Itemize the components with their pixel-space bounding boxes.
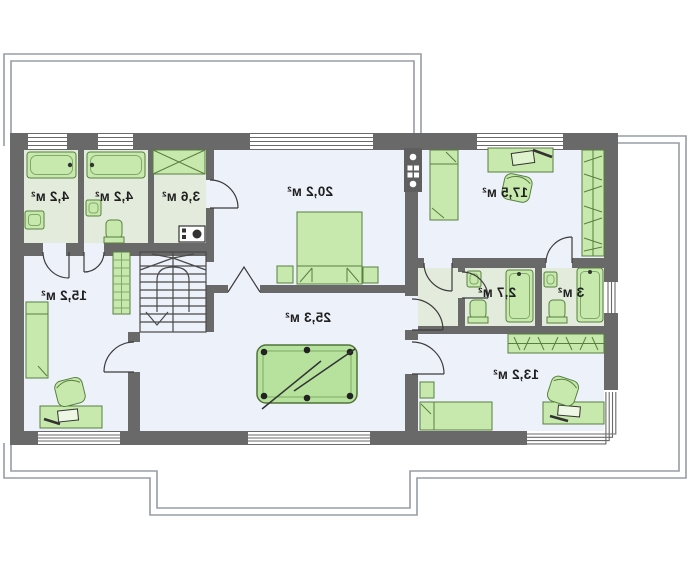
toilet-icon — [104, 220, 124, 243]
nightstand-icon — [277, 266, 293, 283]
window — [605, 282, 617, 313]
desk-icon — [488, 148, 553, 172]
bathtub-icon — [27, 152, 76, 178]
washbasin-icon — [25, 211, 44, 229]
window — [38, 432, 120, 444]
room-area-label: 4,2 м² — [95, 189, 134, 204]
room-area-label: 17,5 м² — [482, 185, 528, 200]
room-area-label: 4,2 м² — [31, 189, 70, 204]
billiard-table-icon — [257, 345, 357, 409]
toilet-icon — [547, 300, 567, 323]
room-area-label: 3 м² — [557, 285, 584, 300]
double-bed-icon — [297, 212, 362, 284]
single-bed-icon — [420, 402, 492, 430]
window — [248, 432, 370, 444]
wardrobe-icon — [582, 150, 604, 256]
room-area-label: 25,3 м² — [285, 310, 331, 325]
washbasin-icon — [544, 272, 557, 287]
floor-plan-page: 4,2 м² 4,2 м² 3,6 м² 20,2 м² 17,5 м² 15,… — [0, 0, 700, 575]
floor-plan-canvas: 4,2 м² 4,2 м² 3,6 м² 20,2 м² 17,5 м² 15,… — [0, 0, 700, 575]
window — [28, 134, 67, 149]
wardrobe-icon — [153, 150, 205, 174]
nightstand-icon — [363, 267, 378, 283]
laptop-icon — [558, 405, 581, 417]
room-area-label: 13,2 м² — [493, 367, 539, 382]
laptop-icon — [58, 409, 79, 422]
desk-icon — [543, 402, 604, 424]
laptop-icon — [511, 151, 534, 166]
washing-machine-icon — [179, 226, 205, 242]
single-bed-icon — [26, 302, 48, 378]
ventilation-shaft-icon — [404, 148, 422, 192]
room-area-label: 15,2 м² — [41, 288, 87, 303]
desk-icon — [40, 406, 102, 428]
window — [250, 134, 373, 149]
single-bed-icon — [430, 150, 458, 220]
bathtub-icon — [87, 152, 145, 178]
room-area-label: 3,6 м² — [162, 189, 201, 204]
room-area-label: 2,7 м² — [478, 285, 517, 300]
wardrobe-icon — [508, 334, 604, 353]
window — [98, 134, 133, 149]
room-area-label: 20,2 м² — [287, 184, 333, 199]
shelving-icon — [113, 252, 130, 314]
nightstand-icon — [420, 382, 434, 398]
toilet-icon — [468, 300, 488, 323]
window — [477, 134, 563, 149]
